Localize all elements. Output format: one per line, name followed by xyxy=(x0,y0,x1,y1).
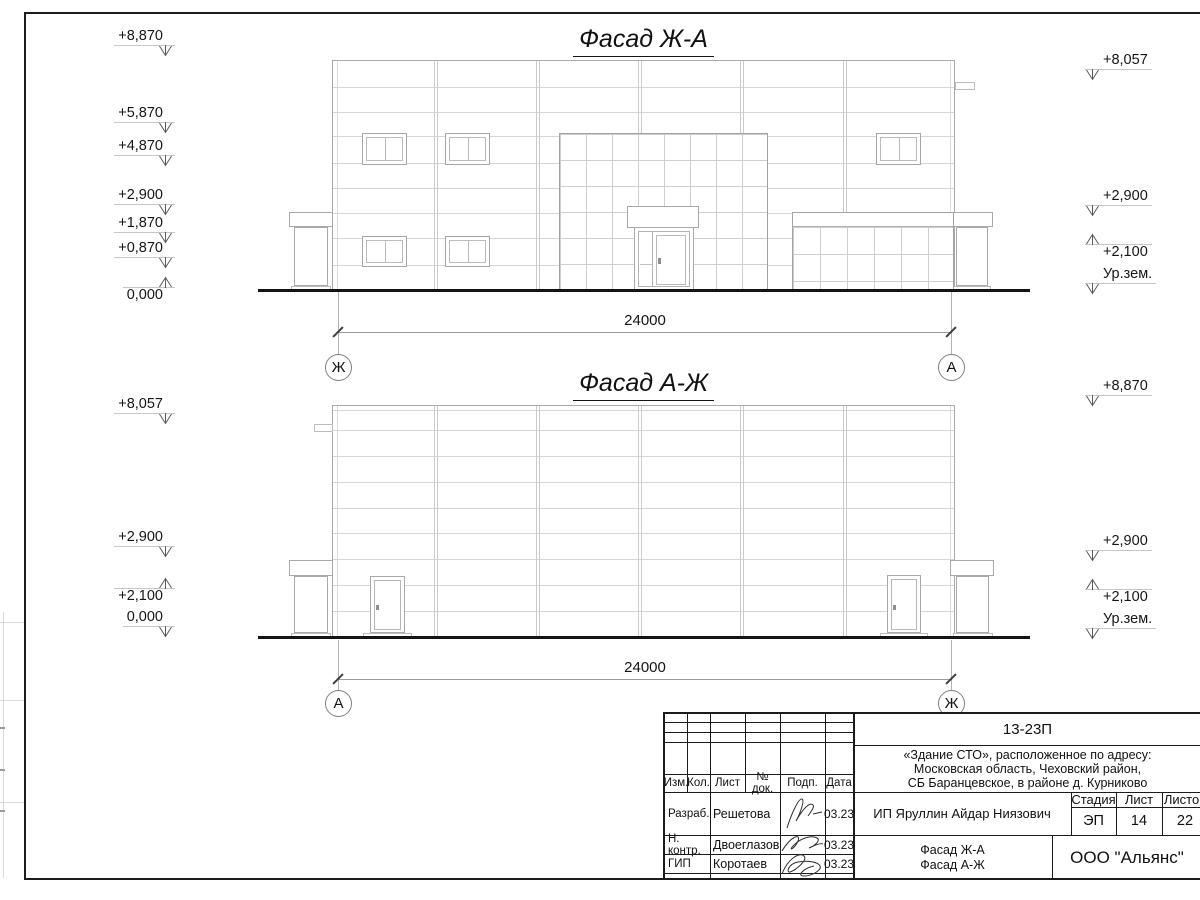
ground-line xyxy=(258,289,1030,292)
project-line: Московская область, Чеховский район, xyxy=(914,762,1141,776)
wall-edge-line xyxy=(337,61,338,289)
pilaster-body xyxy=(956,576,989,633)
facade-title: Фасад Ж-А xyxy=(332,25,955,57)
elevation-mark: +8,057 xyxy=(1085,53,1200,70)
door-handle xyxy=(376,605,379,610)
elevation-mark: +2,100 xyxy=(1085,244,1200,261)
titleblock-line xyxy=(665,722,853,723)
organization-name: ООО "Альянс" xyxy=(1052,835,1200,880)
pilaster-cap xyxy=(289,212,333,227)
frame-top xyxy=(24,12,1200,14)
dimension-line xyxy=(338,679,952,680)
siding-line xyxy=(333,611,954,612)
elevation-value: 0,000 xyxy=(123,287,175,304)
elevation-arrow-icon xyxy=(1085,283,1100,295)
panel-joint xyxy=(434,61,438,289)
siding-line xyxy=(333,112,954,113)
sheet-title: Фасад Ж-А Фасад А-Ж xyxy=(853,835,1052,880)
elevation-mark: +2,900 xyxy=(1085,534,1200,551)
siding-line xyxy=(333,508,954,509)
project-line: «Здание СТО», расположенное по адресу: xyxy=(903,748,1151,762)
elevation-arrow-icon xyxy=(158,413,173,425)
elevation-value: +2,100 xyxy=(1085,244,1152,261)
roof-outlet xyxy=(955,82,975,90)
stage-value: ЭП xyxy=(1071,807,1116,835)
elevation-mark: +8,870 xyxy=(0,29,175,46)
side-door xyxy=(370,576,405,633)
row-name: Двоеглазов xyxy=(713,835,780,854)
siding-line xyxy=(333,456,954,457)
client-name: ИП Яруллин Айдар Ниязович xyxy=(853,792,1071,835)
project-description: «Здание СТО», расположенное по адресу: М… xyxy=(853,745,1200,792)
facade-title-text: Фасад А-Ж xyxy=(573,369,714,401)
elevation-mark: +2,900 xyxy=(1085,189,1200,206)
entrance-sign xyxy=(627,206,699,228)
col-header-ndok: № док. xyxy=(745,774,780,792)
row-date: 03.23 xyxy=(825,792,853,835)
row-date: 03.23 xyxy=(825,854,853,873)
elevation-value: +4,870 xyxy=(114,139,175,156)
elevation-value: +1,870 xyxy=(114,216,175,233)
col-header-list: Лист xyxy=(710,774,745,792)
facade-title: Фасад А-Ж xyxy=(332,369,955,401)
elevation-mark: +1,870 xyxy=(0,216,175,233)
col-header-podp: Подп. xyxy=(780,774,825,792)
elevation-mark: Ур.зем. xyxy=(1085,267,1200,284)
elevation-value: +2,100 xyxy=(114,588,175,605)
elevation-arrow-icon xyxy=(158,577,173,589)
panel-joint xyxy=(843,406,847,636)
elevation-mark: +4,870 xyxy=(0,139,175,156)
elevation-value: Ур.зем. xyxy=(1085,612,1156,629)
elevation-arrow-icon xyxy=(158,45,173,57)
ground-line xyxy=(258,636,1030,639)
elevation-mark: 0,000 xyxy=(0,610,175,627)
elevation-value: +5,870 xyxy=(114,106,175,123)
elevation-mark: +2,900 xyxy=(0,530,175,547)
wall-edge-line xyxy=(950,406,951,636)
pilaster-body xyxy=(294,576,328,633)
elevation-arrow-icon xyxy=(158,122,173,134)
titleblock-line xyxy=(665,742,853,743)
elevation-arrow-icon xyxy=(158,546,173,558)
elevation-mark: +8,057 xyxy=(0,397,175,414)
col-header-izm: Изм. xyxy=(665,774,687,792)
pilaster-cap xyxy=(951,212,993,227)
window xyxy=(362,236,407,267)
pilaster-body xyxy=(956,227,988,286)
col-header-kol: Кол. xyxy=(687,774,710,792)
elevation-mark: +2,100 xyxy=(0,588,175,605)
glazing-grid xyxy=(793,227,953,289)
axis-bubble-left: А xyxy=(325,690,352,717)
siding-line xyxy=(333,482,954,483)
elevation-arrow-icon xyxy=(158,626,173,638)
window xyxy=(445,133,490,165)
elevation-value: +8,057 xyxy=(1085,53,1152,70)
door-handle xyxy=(658,258,661,264)
row-role: Разраб. xyxy=(668,792,710,835)
row-name: Решетова xyxy=(713,792,780,835)
margin-line xyxy=(0,700,24,701)
sidelight-rail xyxy=(640,264,652,265)
doc-number: 13-23П xyxy=(853,714,1200,745)
siding-line xyxy=(333,87,954,88)
title-block: Изм. Кол. Лист № док. Подп. Дата Разраб.… xyxy=(663,712,1200,880)
panel-joint xyxy=(536,406,540,636)
elevation-value: +8,057 xyxy=(114,397,175,414)
elevation-arrow-icon xyxy=(158,276,173,288)
elevation-mark: +2,100 xyxy=(1085,589,1200,606)
sheet-value: 14 xyxy=(1116,807,1162,835)
row-name: Коротаев xyxy=(713,854,780,873)
elevation-value: +2,900 xyxy=(114,188,175,205)
elevation-value: +2,900 xyxy=(1085,189,1152,206)
window xyxy=(876,133,921,165)
row-role: ГИП xyxy=(668,854,710,873)
elevation-value: 0,000 xyxy=(123,610,175,627)
siding-line xyxy=(333,430,954,431)
elevation-arrow-icon xyxy=(158,257,173,269)
elevation-value: +2,900 xyxy=(114,530,175,547)
drawing-canvas: Фасад Ж-А xyxy=(0,0,1200,900)
margin-line xyxy=(3,612,4,878)
window xyxy=(445,236,490,267)
panel-joint xyxy=(638,406,642,636)
elevation-arrow-icon xyxy=(158,155,173,167)
elevation-arrow-icon xyxy=(1085,205,1100,217)
siding-line xyxy=(333,533,954,534)
signature xyxy=(778,848,826,882)
sheets-value: 22 xyxy=(1162,807,1200,835)
showroom-glazing xyxy=(792,212,954,290)
elevation-mark: +2,900 xyxy=(0,188,175,205)
elevation-value: Ур.зем. xyxy=(1085,267,1156,284)
dimension-label: 24000 xyxy=(338,659,952,676)
elevation-arrow-icon xyxy=(1085,578,1100,590)
facade-title-text: Фасад Ж-А xyxy=(573,25,714,57)
door-handle xyxy=(893,605,896,610)
elevation-value: +2,100 xyxy=(1085,589,1152,606)
stage-label: Стадия xyxy=(1071,792,1116,807)
elevation-mark: +8,870 xyxy=(1085,379,1200,396)
titleblock-line xyxy=(665,732,853,733)
elevation-value: +2,900 xyxy=(1085,534,1152,551)
panel-joint xyxy=(434,406,438,636)
project-line: СБ Баранцевское, в районе д. Курниково xyxy=(908,776,1148,790)
panel-joint xyxy=(740,406,744,636)
elevation-mark: 0,000 xyxy=(0,287,175,304)
entrance-door xyxy=(634,227,694,290)
sheet-title-line: Фасад А-Ж xyxy=(920,858,984,873)
wall-edge-line xyxy=(337,406,338,636)
margin-mark xyxy=(0,810,5,812)
elevation-arrow-icon xyxy=(1085,628,1100,640)
margin-line xyxy=(0,802,24,803)
sheet-title-line: Фасад Ж-А xyxy=(920,843,984,858)
elevation-arrow-icon xyxy=(1085,395,1100,407)
elevation-value: +0,870 xyxy=(114,241,175,258)
elevation-mark: +5,870 xyxy=(0,106,175,123)
elevation-mark: Ур.зем. xyxy=(1085,612,1200,629)
panel-joint xyxy=(536,61,540,289)
col-header-data: Дата xyxy=(825,774,853,792)
glazing-header-band xyxy=(793,213,953,227)
siding-line xyxy=(333,410,954,411)
pilaster-cap xyxy=(950,560,994,576)
sheet-label: Лист xyxy=(1116,792,1162,807)
siding-line xyxy=(333,559,954,560)
siding-line xyxy=(333,585,954,586)
dimension-line xyxy=(338,332,952,333)
dimension-label: 24000 xyxy=(338,312,952,329)
elevation-value: +8,870 xyxy=(1085,379,1152,396)
roof-outlet xyxy=(314,424,333,432)
window xyxy=(362,133,407,165)
elevation-arrow-icon xyxy=(1085,233,1100,245)
sheets-label: Листов xyxy=(1162,792,1200,807)
elevation-value: +8,870 xyxy=(114,29,175,46)
pilaster-body xyxy=(294,227,328,286)
titleblock-line xyxy=(710,714,711,880)
side-door xyxy=(887,575,921,633)
door-mullion xyxy=(652,232,653,286)
signature xyxy=(782,794,824,834)
margin-mark xyxy=(0,769,5,771)
building-outline xyxy=(332,405,955,637)
elevation-arrow-icon xyxy=(1085,550,1100,562)
row-role: Н. контр. xyxy=(668,835,710,854)
elevation-arrow-icon xyxy=(1085,69,1100,81)
elevation-mark: +0,870 xyxy=(0,241,175,258)
margin-mark xyxy=(0,727,5,729)
pilaster-cap xyxy=(289,560,333,576)
row-date: 03.23 xyxy=(825,835,853,854)
